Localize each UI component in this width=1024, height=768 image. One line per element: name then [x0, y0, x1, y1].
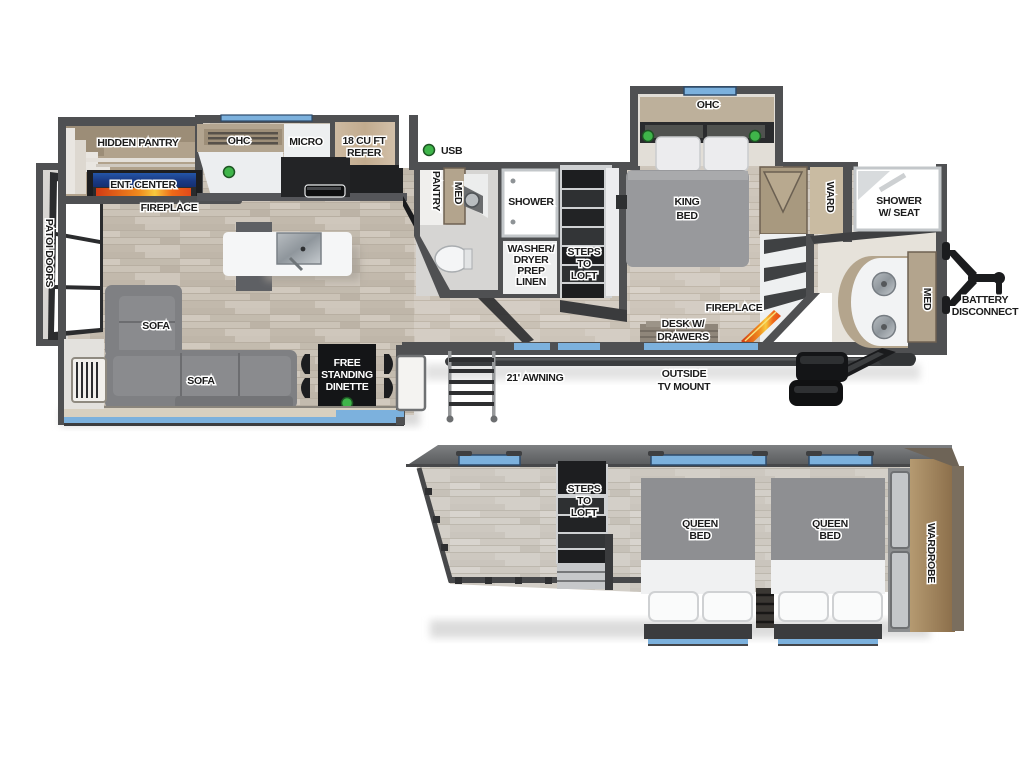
- svg-text:MED: MED: [452, 182, 464, 205]
- svg-text:LOFT: LOFT: [571, 507, 598, 519]
- svg-text:LOFT: LOFT: [571, 270, 598, 282]
- svg-text:DESK W/: DESK W/: [662, 318, 705, 330]
- svg-text:OUTSIDE: OUTSIDE: [662, 368, 707, 380]
- svg-text:DISCONNECT: DISCONNECT: [952, 306, 1019, 318]
- svg-text:QUEEN: QUEEN: [812, 518, 848, 530]
- svg-text:HIDDEN PANTRY: HIDDEN PANTRY: [97, 137, 179, 149]
- svg-text:W/ SEAT: W/ SEAT: [879, 207, 921, 219]
- svg-text:FIREPLACE: FIREPLACE: [706, 302, 763, 314]
- svg-text:TV MOUNT: TV MOUNT: [658, 381, 711, 393]
- svg-text:PATOI DOORS: PATOI DOORS: [43, 219, 55, 288]
- svg-text:TO: TO: [577, 495, 591, 507]
- svg-text:21' AWNING: 21' AWNING: [507, 372, 564, 384]
- svg-text:FIREPLACE: FIREPLACE: [141, 202, 198, 214]
- svg-text:STANDING: STANDING: [321, 369, 373, 381]
- svg-text:ENT. CENTER: ENT. CENTER: [110, 179, 176, 191]
- svg-text:BATTERY: BATTERY: [962, 294, 1009, 306]
- svg-text:USB: USB: [441, 145, 463, 157]
- svg-text:BED: BED: [676, 210, 698, 222]
- svg-text:WARD: WARD: [824, 182, 836, 214]
- svg-text:MED: MED: [921, 288, 933, 311]
- svg-text:18 CU FT: 18 CU FT: [342, 135, 386, 147]
- svg-text:SOFA: SOFA: [142, 320, 170, 332]
- svg-text:SOFA: SOFA: [187, 375, 215, 387]
- svg-text:BED: BED: [819, 530, 841, 542]
- svg-text:PANTRY: PANTRY: [430, 171, 442, 211]
- svg-text:SHOWER: SHOWER: [508, 196, 554, 208]
- svg-text:DRAWERS: DRAWERS: [657, 331, 709, 343]
- svg-text:MICRO: MICRO: [289, 136, 323, 148]
- svg-text:KING: KING: [674, 196, 699, 208]
- svg-text:STEPS: STEPS: [568, 246, 601, 258]
- svg-text:OHC: OHC: [697, 99, 720, 111]
- svg-text:REFER: REFER: [347, 147, 382, 159]
- svg-text:OHC: OHC: [228, 135, 251, 147]
- svg-text:BED: BED: [689, 530, 711, 542]
- svg-text:WARDROBE: WARDROBE: [925, 523, 937, 583]
- svg-text:STEPS: STEPS: [568, 483, 601, 495]
- svg-text:LINEN: LINEN: [516, 276, 546, 288]
- svg-text:FREE: FREE: [334, 357, 361, 369]
- svg-text:QUEEN: QUEEN: [682, 518, 718, 530]
- svg-text:SHOWER: SHOWER: [876, 195, 922, 207]
- svg-text:TO: TO: [577, 258, 591, 270]
- svg-text:DINETTE: DINETTE: [326, 381, 369, 393]
